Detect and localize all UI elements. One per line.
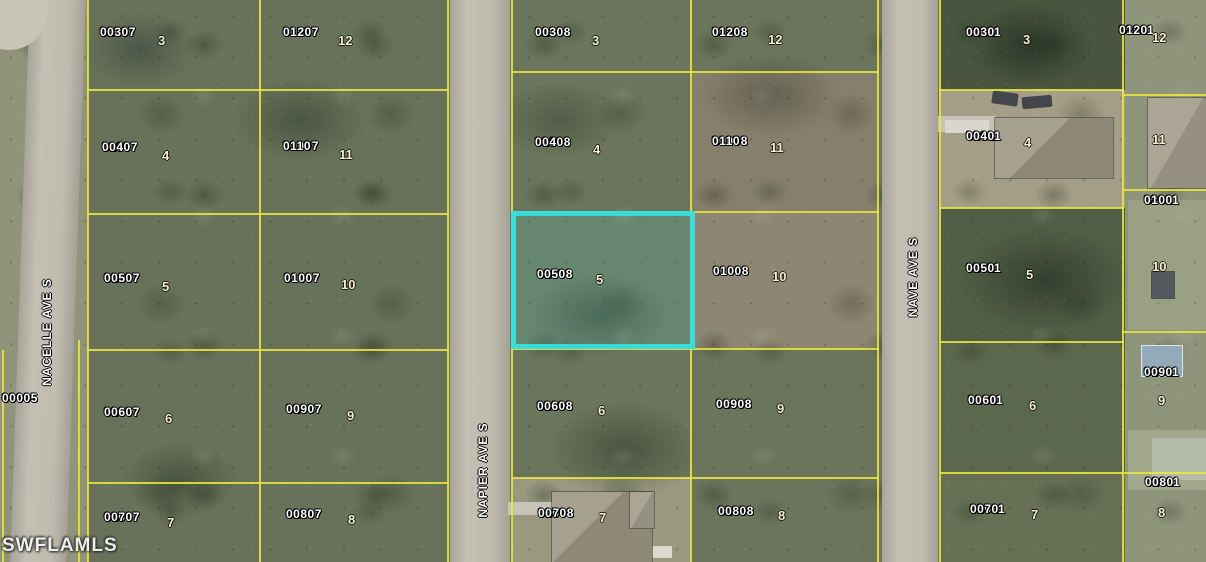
lot-number-label: 4	[1024, 136, 1031, 149]
lot-number-label: 8	[778, 509, 785, 522]
lot-number-label: 3	[158, 34, 165, 47]
lot-number-label: 5	[162, 280, 169, 293]
lot-number-label: 4	[162, 149, 169, 162]
lot-number-label: 12	[768, 33, 782, 46]
lot-number-label: 6	[165, 412, 172, 425]
lot-number-label: 9	[1158, 394, 1165, 407]
lot-number-label: 4	[593, 143, 600, 156]
lot-number-label: 11	[339, 148, 353, 161]
lot-number-label: 11	[770, 141, 784, 154]
labels-layer: 0100700303010070120120100800303010080120…	[0, 0, 1206, 562]
lot-number-label: 11	[1152, 133, 1166, 146]
lot-number-label: 10	[1152, 260, 1166, 273]
lot-number-label: 12	[1152, 31, 1166, 44]
lot-number-label: 3	[1023, 33, 1030, 46]
lot-number-label: 9	[777, 402, 784, 415]
street-name-label: NAVE AVE S	[906, 237, 920, 317]
lot-number-label: 7	[167, 516, 174, 529]
lot-number-label: 5	[1026, 268, 1033, 281]
street-name-label: NAPIER AVE S	[476, 422, 490, 517]
lot-number-label: 3	[592, 34, 599, 47]
lot-number-label: 12	[338, 34, 352, 47]
lot-number-label: 5	[596, 273, 603, 286]
lot-number-label: 8	[348, 513, 355, 526]
lot-number-label: 8	[1158, 506, 1165, 519]
lot-number-label: 9	[347, 409, 354, 422]
lot-number-label: 7	[599, 511, 606, 524]
lot-number-label: 6	[598, 404, 605, 417]
mls-watermark: SWFLAMLS	[2, 535, 118, 557]
lot-number-label: 10	[341, 278, 355, 291]
lot-number-label: 10	[772, 270, 786, 283]
aerial-parcel-map: 0100700303010070120120100800303010080120…	[0, 0, 1206, 562]
street-name-label: NACELLE AVE S	[40, 278, 54, 386]
lot-number-label: 6	[1029, 399, 1036, 412]
lot-number-label: 7	[1031, 508, 1038, 521]
